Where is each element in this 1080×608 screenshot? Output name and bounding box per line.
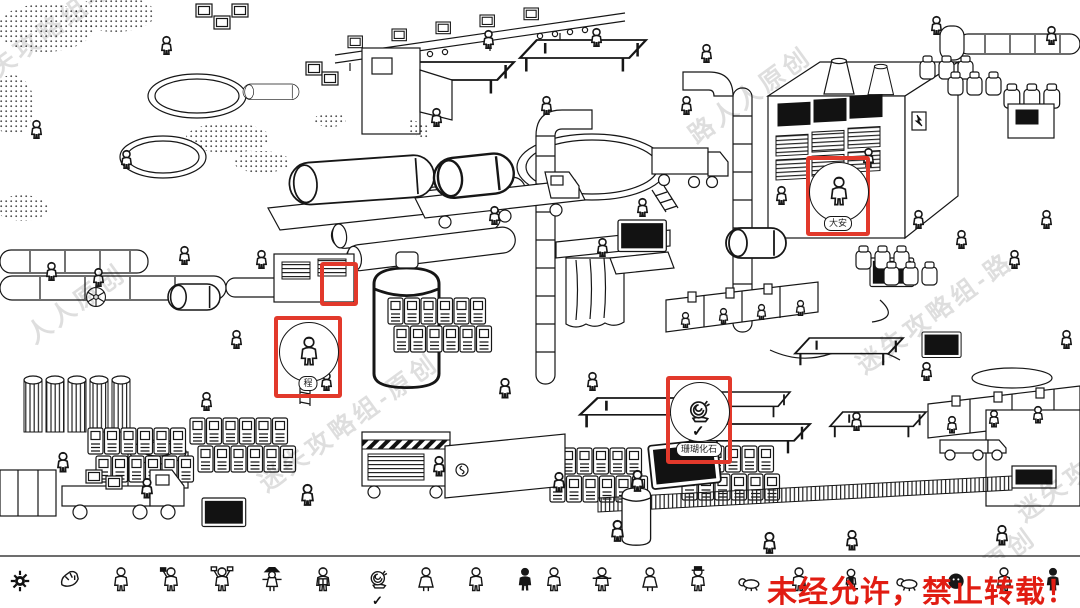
highlight-fossil[interactable]: ✓珊瑚化石 [666, 376, 732, 464]
target-item-worker-arms-out[interactable] [589, 566, 615, 606]
settings-gear-icon[interactable] [8, 568, 32, 594]
found-check-mark: ✓ [692, 422, 705, 440]
target-item-worker-with-hat[interactable] [685, 566, 711, 606]
person-bubble-icon [279, 322, 339, 382]
copyright-notice: 未经允许，禁止转载！ [767, 567, 1077, 608]
target-item-worker-dark-outfit[interactable] [512, 566, 538, 606]
target-item-worker-raising-flag[interactable] [158, 566, 184, 606]
found-item-label: 大安 [824, 216, 852, 231]
target-item-scarecrow-worker[interactable] [259, 566, 285, 606]
target-item-worker-with-sash[interactable] [108, 566, 134, 606]
game-stage: 迷失攻略组-路人人原创迷失攻略组-原创路人人原创迷失攻略组-路人人原创迷失攻略组… [0, 0, 1080, 608]
item-found-check: ✓ [372, 593, 383, 608]
highlight-layer: 程大安✓珊瑚化石 [0, 0, 1080, 608]
target-item-snail-fossil[interactable]: ✓ [366, 566, 392, 606]
target-item-worker[interactable] [463, 566, 489, 606]
person-bubble-icon [809, 162, 869, 222]
target-item-worker-in-dress[interactable] [637, 566, 663, 606]
highlight-da-an[interactable]: 大安 [806, 156, 870, 236]
target-item-worker-2[interactable] [541, 566, 567, 606]
target-item-crawling-worker[interactable] [736, 566, 762, 606]
found-item-label: 珊瑚化石 [676, 442, 722, 457]
target-item-fossil-fragment[interactable] [57, 566, 83, 606]
target-item-worker-with-banners[interactable] [209, 566, 235, 606]
target-item-worker-reading[interactable] [310, 566, 336, 606]
found-item-label: 程 [298, 376, 317, 391]
target-item-worker-in-apron[interactable] [413, 566, 439, 606]
highlight-worker[interactable]: 程 [274, 316, 342, 398]
highlight-valve-wheel[interactable] [320, 262, 358, 306]
